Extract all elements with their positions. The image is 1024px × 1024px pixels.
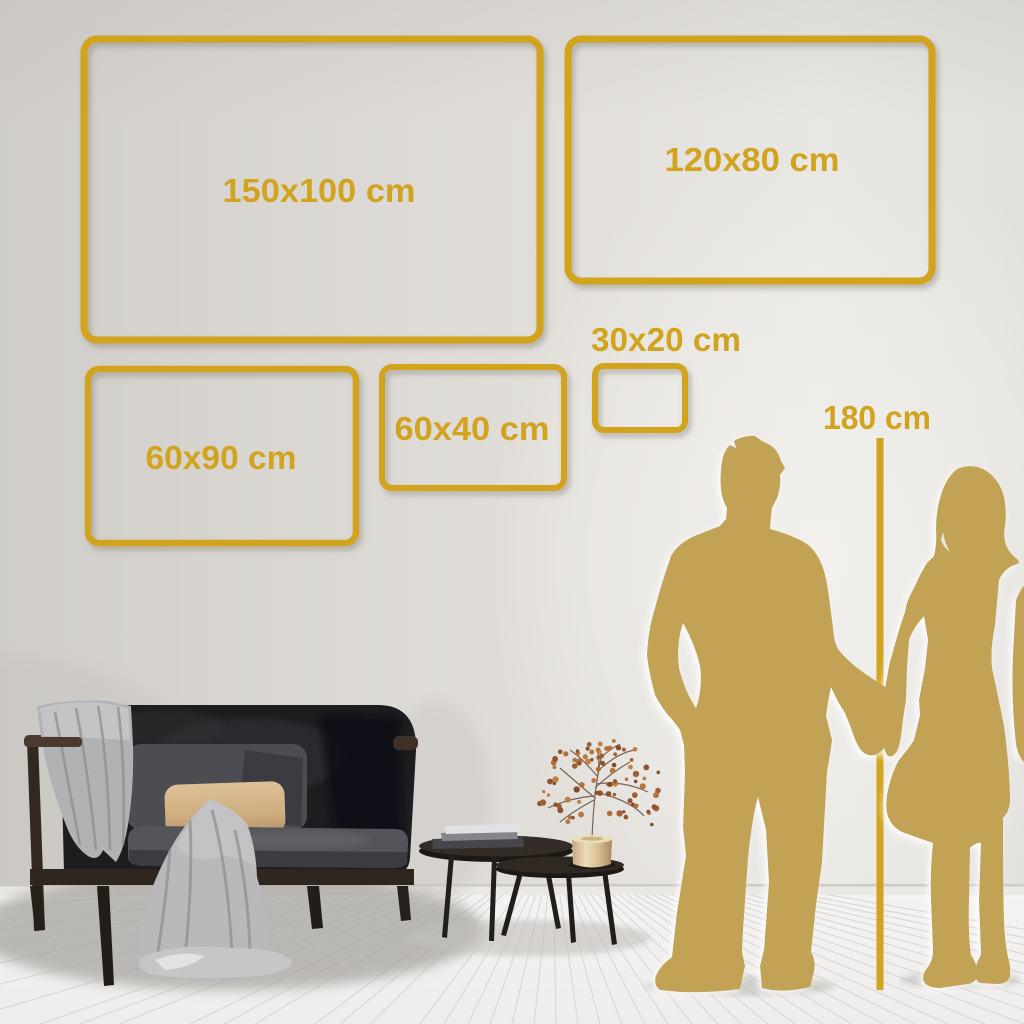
svg-text:180 cm: 180 cm [823, 399, 931, 436]
svg-text:60x40 cm: 60x40 cm [395, 410, 550, 447]
svg-text:60x90 cm: 60x90 cm [146, 439, 297, 476]
svg-text:120x80 cm: 120x80 cm [665, 141, 840, 178]
svg-text:30x20 cm: 30x20 cm [591, 321, 741, 358]
svg-text:150x100 cm: 150x100 cm [223, 172, 416, 209]
